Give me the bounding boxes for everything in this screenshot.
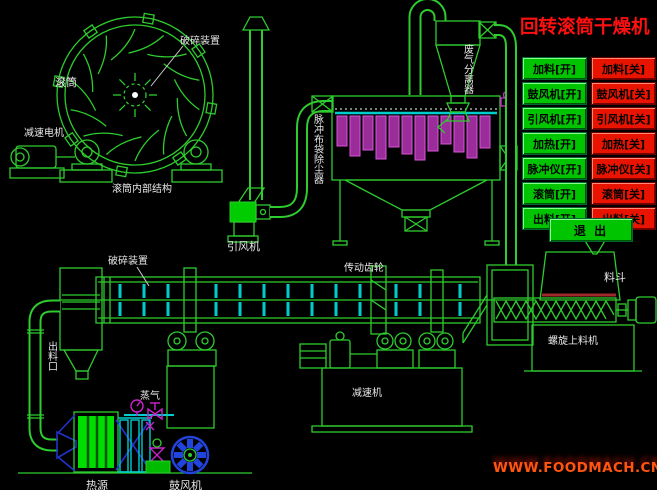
- button-heat-off[interactable]: 加热[关]: [591, 132, 656, 155]
- button-heat-on[interactable]: 加热[开]: [522, 132, 587, 155]
- label-drive-gear: 传动齿轮: [344, 261, 384, 274]
- button-drum-on[interactable]: 滚筒[开]: [522, 182, 587, 205]
- leader-line: [151, 46, 183, 86]
- button-pulse-off[interactable]: 脉冲仪[关]: [591, 157, 656, 180]
- button-feed-on[interactable]: 加料[开]: [522, 57, 587, 80]
- rotary-drum: 破碎装置 传动齿轮: [60, 254, 536, 334]
- steam-valve-2: [150, 448, 164, 462]
- induced-fan-body: [230, 202, 256, 222]
- label-discharge-outlet: 出料口: [46, 340, 58, 371]
- page-title: 回转滚筒干燥机: [520, 17, 657, 39]
- end-view-motor: [10, 146, 75, 178]
- hmi-screen: 破碎装置 滚筒 减速电机 滚筒内部结构 引风机: [0, 0, 657, 490]
- label-steam: 蒸气: [140, 389, 160, 402]
- label-crusher-device-mid: 破碎装置: [108, 254, 148, 267]
- button-induced-fan-on[interactable]: 引风机[开]: [522, 107, 587, 130]
- blower-fan: [172, 437, 208, 473]
- label-screw-feeder: 螺旋上料机: [548, 334, 598, 347]
- button-blast-fan-off[interactable]: 鼓风机[关]: [591, 82, 656, 105]
- button-pulse-on[interactable]: 脉冲仪[开]: [522, 157, 587, 180]
- button-blast-fan-on[interactable]: 鼓风机[开]: [522, 82, 587, 105]
- label-drum: 滚筒: [55, 75, 77, 89]
- label-reducer: 减速机: [352, 386, 382, 399]
- label-blower: 鼓风机: [169, 478, 202, 490]
- label-induced-fan: 引风机: [227, 239, 260, 253]
- button-feed-off[interactable]: 加料[关]: [591, 57, 656, 80]
- label-bag-dust-collector: 脉冲布袋除尘器: [312, 113, 324, 185]
- label-hopper: 料斗: [604, 270, 626, 284]
- label-cyclone: 废气分离器: [462, 43, 474, 95]
- center-crusher-hub: [113, 73, 157, 117]
- drum-end-view: 破碎装置 滚筒 减速电机 滚筒内部结构: [10, 13, 222, 195]
- control-panel: 加料[开] 加料[关] 鼓风机[开] 鼓风机[关] 引风机[开] 引风机[关] …: [522, 57, 656, 230]
- watermark: WWW.FOODMACH.CN: [493, 460, 657, 476]
- exit-button[interactable]: 退 出: [549, 218, 633, 242]
- button-drum-off[interactable]: 滚筒[关]: [591, 182, 656, 205]
- drum-supports: 减速机: [167, 332, 472, 432]
- label-heat-source: 热源: [86, 478, 108, 490]
- bag-dust-collector: 脉冲布袋除尘器: [312, 92, 518, 246]
- label-crusher-device-top: 破碎装置: [180, 34, 220, 47]
- feed-end-and-screw: 料斗 螺旋上料机: [463, 239, 656, 371]
- label-drum-internal: 滚筒内部结构: [112, 182, 172, 195]
- button-induced-fan-off[interactable]: 引风机[关]: [591, 107, 656, 130]
- support-rollers: [60, 140, 222, 182]
- label-gear-motor: 减速电机: [24, 126, 64, 139]
- filter-bags: [337, 116, 490, 160]
